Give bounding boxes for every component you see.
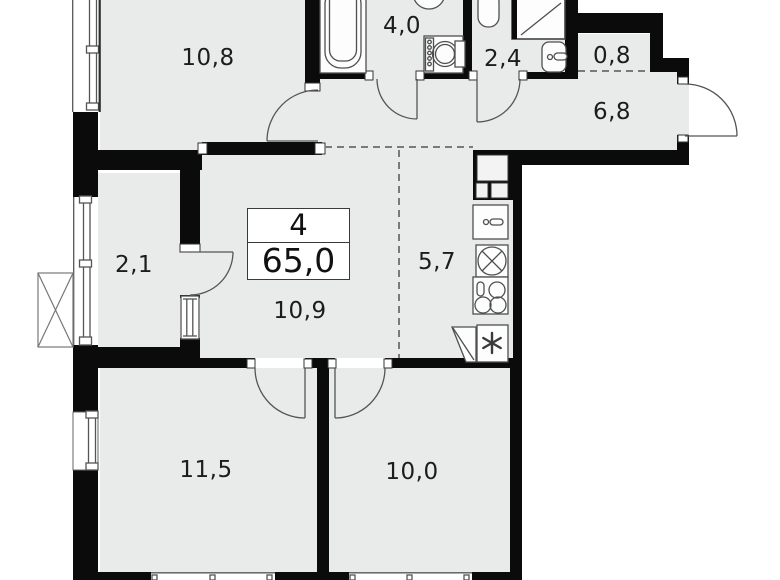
room-area-label-bedroom-top: 10,8 xyxy=(181,45,234,71)
room-area-label-wardrobe: 2,1 xyxy=(115,252,153,278)
room-area-label-bedroom-right: 10,0 xyxy=(385,459,438,485)
room-area-label-hallway: 6,8 xyxy=(593,99,631,125)
room-area-label-kitchen: 5,7 xyxy=(418,249,456,275)
floor-plan-drawing xyxy=(0,0,780,580)
window-bedroom-left-side xyxy=(73,411,98,470)
window-glazing-top-left xyxy=(72,0,100,112)
hob-icon xyxy=(476,245,508,277)
toilet-icon xyxy=(542,42,567,72)
washing-machine-icon xyxy=(424,36,465,73)
kitchen-sink-icon xyxy=(473,205,508,239)
room-area-label-wc: 2,4 xyxy=(484,46,522,72)
window-bedroom-left-bottom xyxy=(151,572,275,580)
floor-areas xyxy=(91,0,689,572)
floor-bedroom-top xyxy=(100,0,305,150)
room-area-label-storage: 0,8 xyxy=(593,43,631,69)
floor-entrance-doorway xyxy=(677,84,689,136)
bathtub-icon xyxy=(320,0,366,73)
room-area-label-hall: 10,9 xyxy=(273,298,326,324)
room-area-label-bathroom: 4,0 xyxy=(383,13,421,39)
floor-plan: 10,8 4,0 2,4 0,8 6,8 2,1 5,7 10,9 11,5 1… xyxy=(0,0,780,580)
floor-doorway-wardrobe xyxy=(180,252,200,295)
window-wardrobe-wall xyxy=(181,296,199,339)
total-area: 65,0 xyxy=(248,243,349,279)
fridge-snowflake-icon xyxy=(477,325,508,362)
floor-doorway-bedroom-top xyxy=(305,90,320,142)
rooms-count: 4 xyxy=(248,209,349,243)
apartment-info-box: 4 65,0 xyxy=(247,208,350,280)
vent-shaft-openings xyxy=(476,155,508,198)
window-wardrobe xyxy=(73,196,98,345)
window-bedroom-right-bottom xyxy=(349,572,472,580)
door-arc-entrance xyxy=(685,84,737,136)
wc-basin-icon xyxy=(478,0,499,27)
ac-unit-icon xyxy=(38,273,73,347)
room-area-label-bedroom-left: 11,5 xyxy=(179,457,232,483)
shower-icon xyxy=(512,0,565,39)
stove-icon xyxy=(473,277,508,314)
